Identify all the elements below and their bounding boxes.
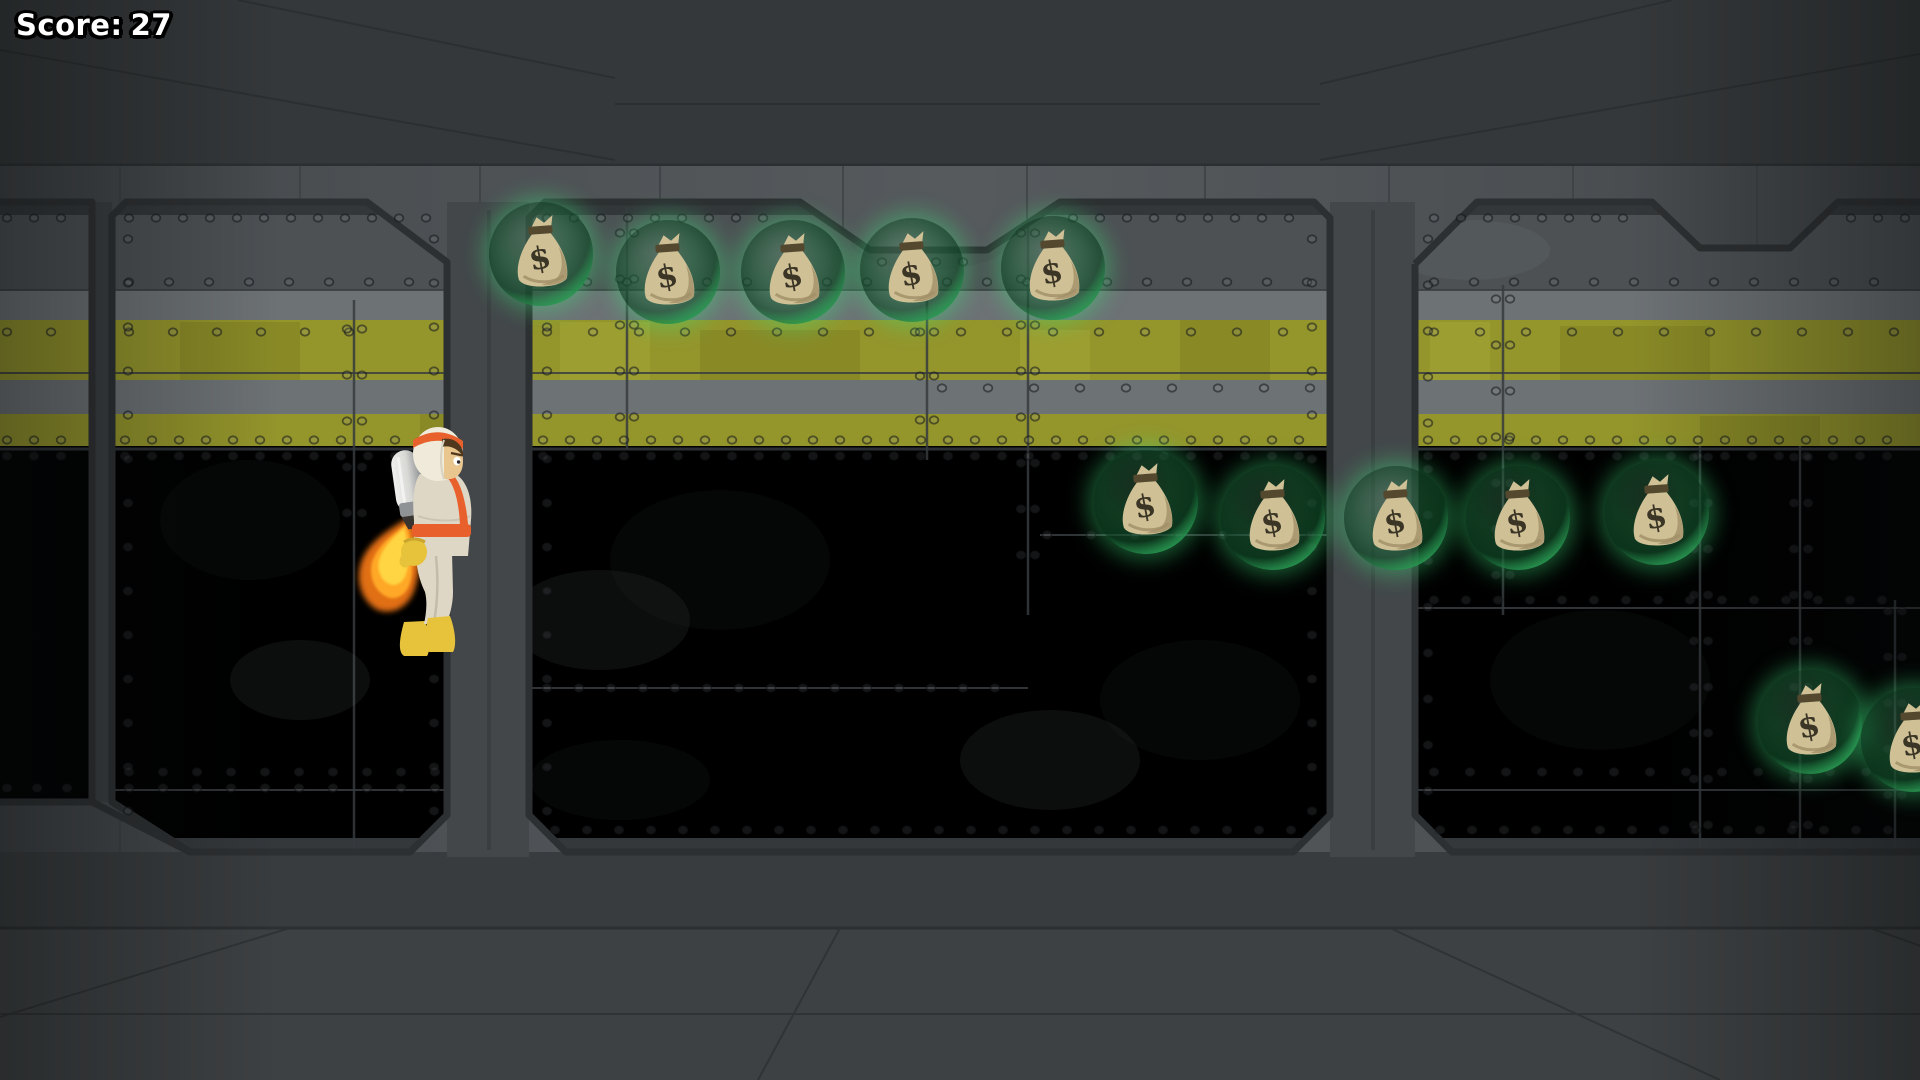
player-boot-front <box>425 616 455 652</box>
coin-money-bag: $ <box>1221 466 1325 570</box>
player-helmet <box>413 427 463 481</box>
vignette-left <box>0 0 280 1080</box>
money-bag-icon: $ <box>1026 228 1080 302</box>
coin-money-bag: $ <box>860 218 964 322</box>
money-bag-icon: $ <box>1119 462 1173 536</box>
coin-money-bag: $ <box>1344 466 1448 570</box>
coin-money-bag: $ <box>1758 670 1862 774</box>
coin-money-bag: $ <box>1605 461 1709 565</box>
coin-money-bag: $ <box>616 220 720 324</box>
score-display: Score:27 <box>16 8 180 42</box>
money-bag-icon: $ <box>885 230 939 304</box>
coin-money-bag: $ <box>1094 450 1198 554</box>
coin-money-bag: $ <box>741 220 845 324</box>
money-bag-icon: $ <box>1630 473 1684 547</box>
money-bag-icon: $ <box>1491 478 1545 552</box>
coin-money-bag: $ <box>1861 688 1920 792</box>
money-bag-icon: $ <box>766 232 820 306</box>
player-character <box>350 424 495 664</box>
coin-money-bag: $ <box>1466 466 1570 570</box>
score-label: Score: <box>16 8 123 42</box>
suit-belt <box>412 524 471 537</box>
game-viewport[interactable]: $$$$$$$$$$$$ Score:27 <box>0 0 1920 1080</box>
money-bag-icon: $ <box>514 214 568 288</box>
coin-money-bag: $ <box>489 202 593 306</box>
score-value: 27 <box>131 8 172 42</box>
money-bag-icon: $ <box>641 232 695 306</box>
money-bag-icon: $ <box>1369 478 1423 552</box>
coin-money-bag: $ <box>1001 216 1105 320</box>
player-boot-back <box>400 621 429 656</box>
money-bag-icon: $ <box>1886 700 1920 774</box>
money-bag-icon: $ <box>1246 478 1300 552</box>
money-bag-icon: $ <box>1783 682 1837 756</box>
